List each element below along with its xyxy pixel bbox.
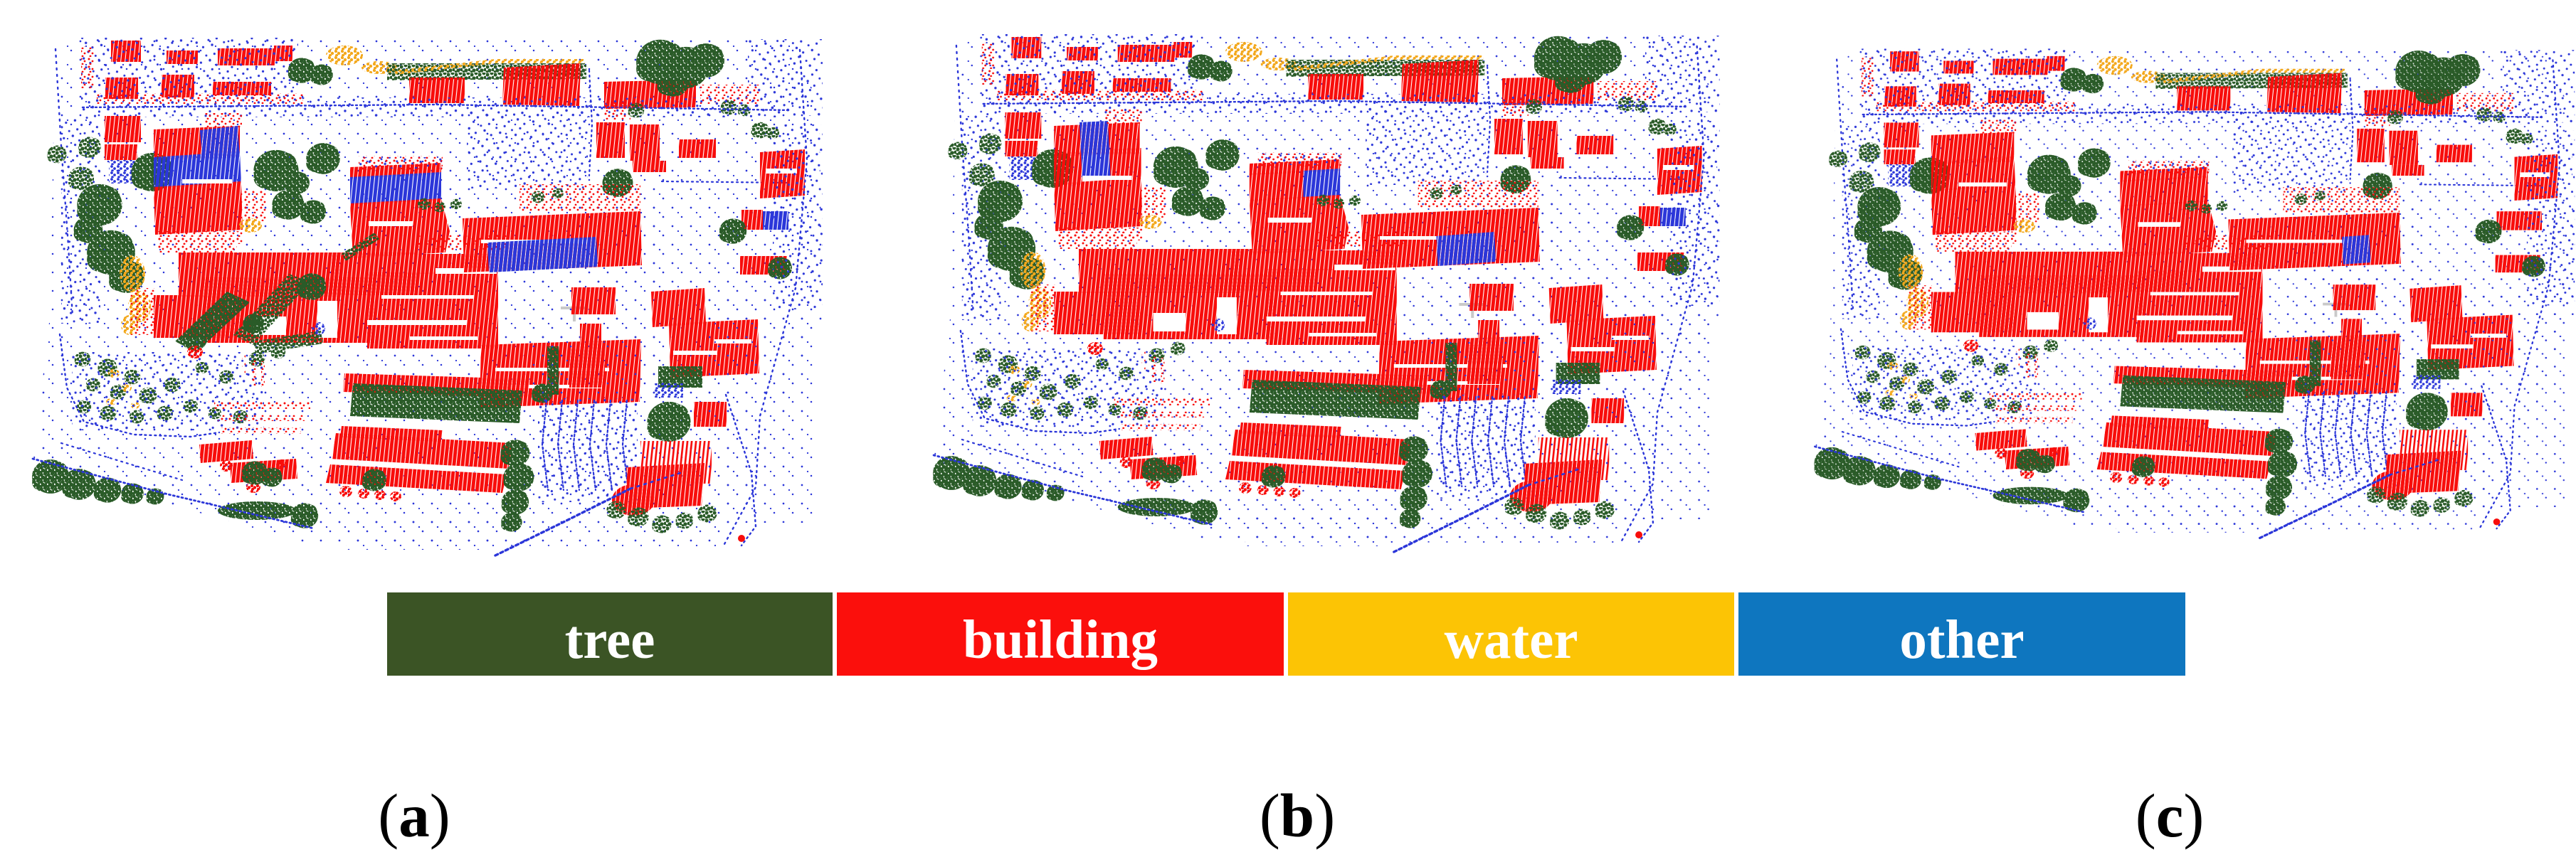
svg-text:other: other xyxy=(1899,609,2024,670)
svg-text:water: water xyxy=(1444,609,1578,670)
svg-text:(c): (c) xyxy=(2136,781,2205,850)
svg-text:(a): (a) xyxy=(378,781,450,850)
svg-text:building: building xyxy=(963,609,1158,670)
svg-text:tree: tree xyxy=(565,609,655,670)
svg-text:(b): (b) xyxy=(1260,781,1335,850)
